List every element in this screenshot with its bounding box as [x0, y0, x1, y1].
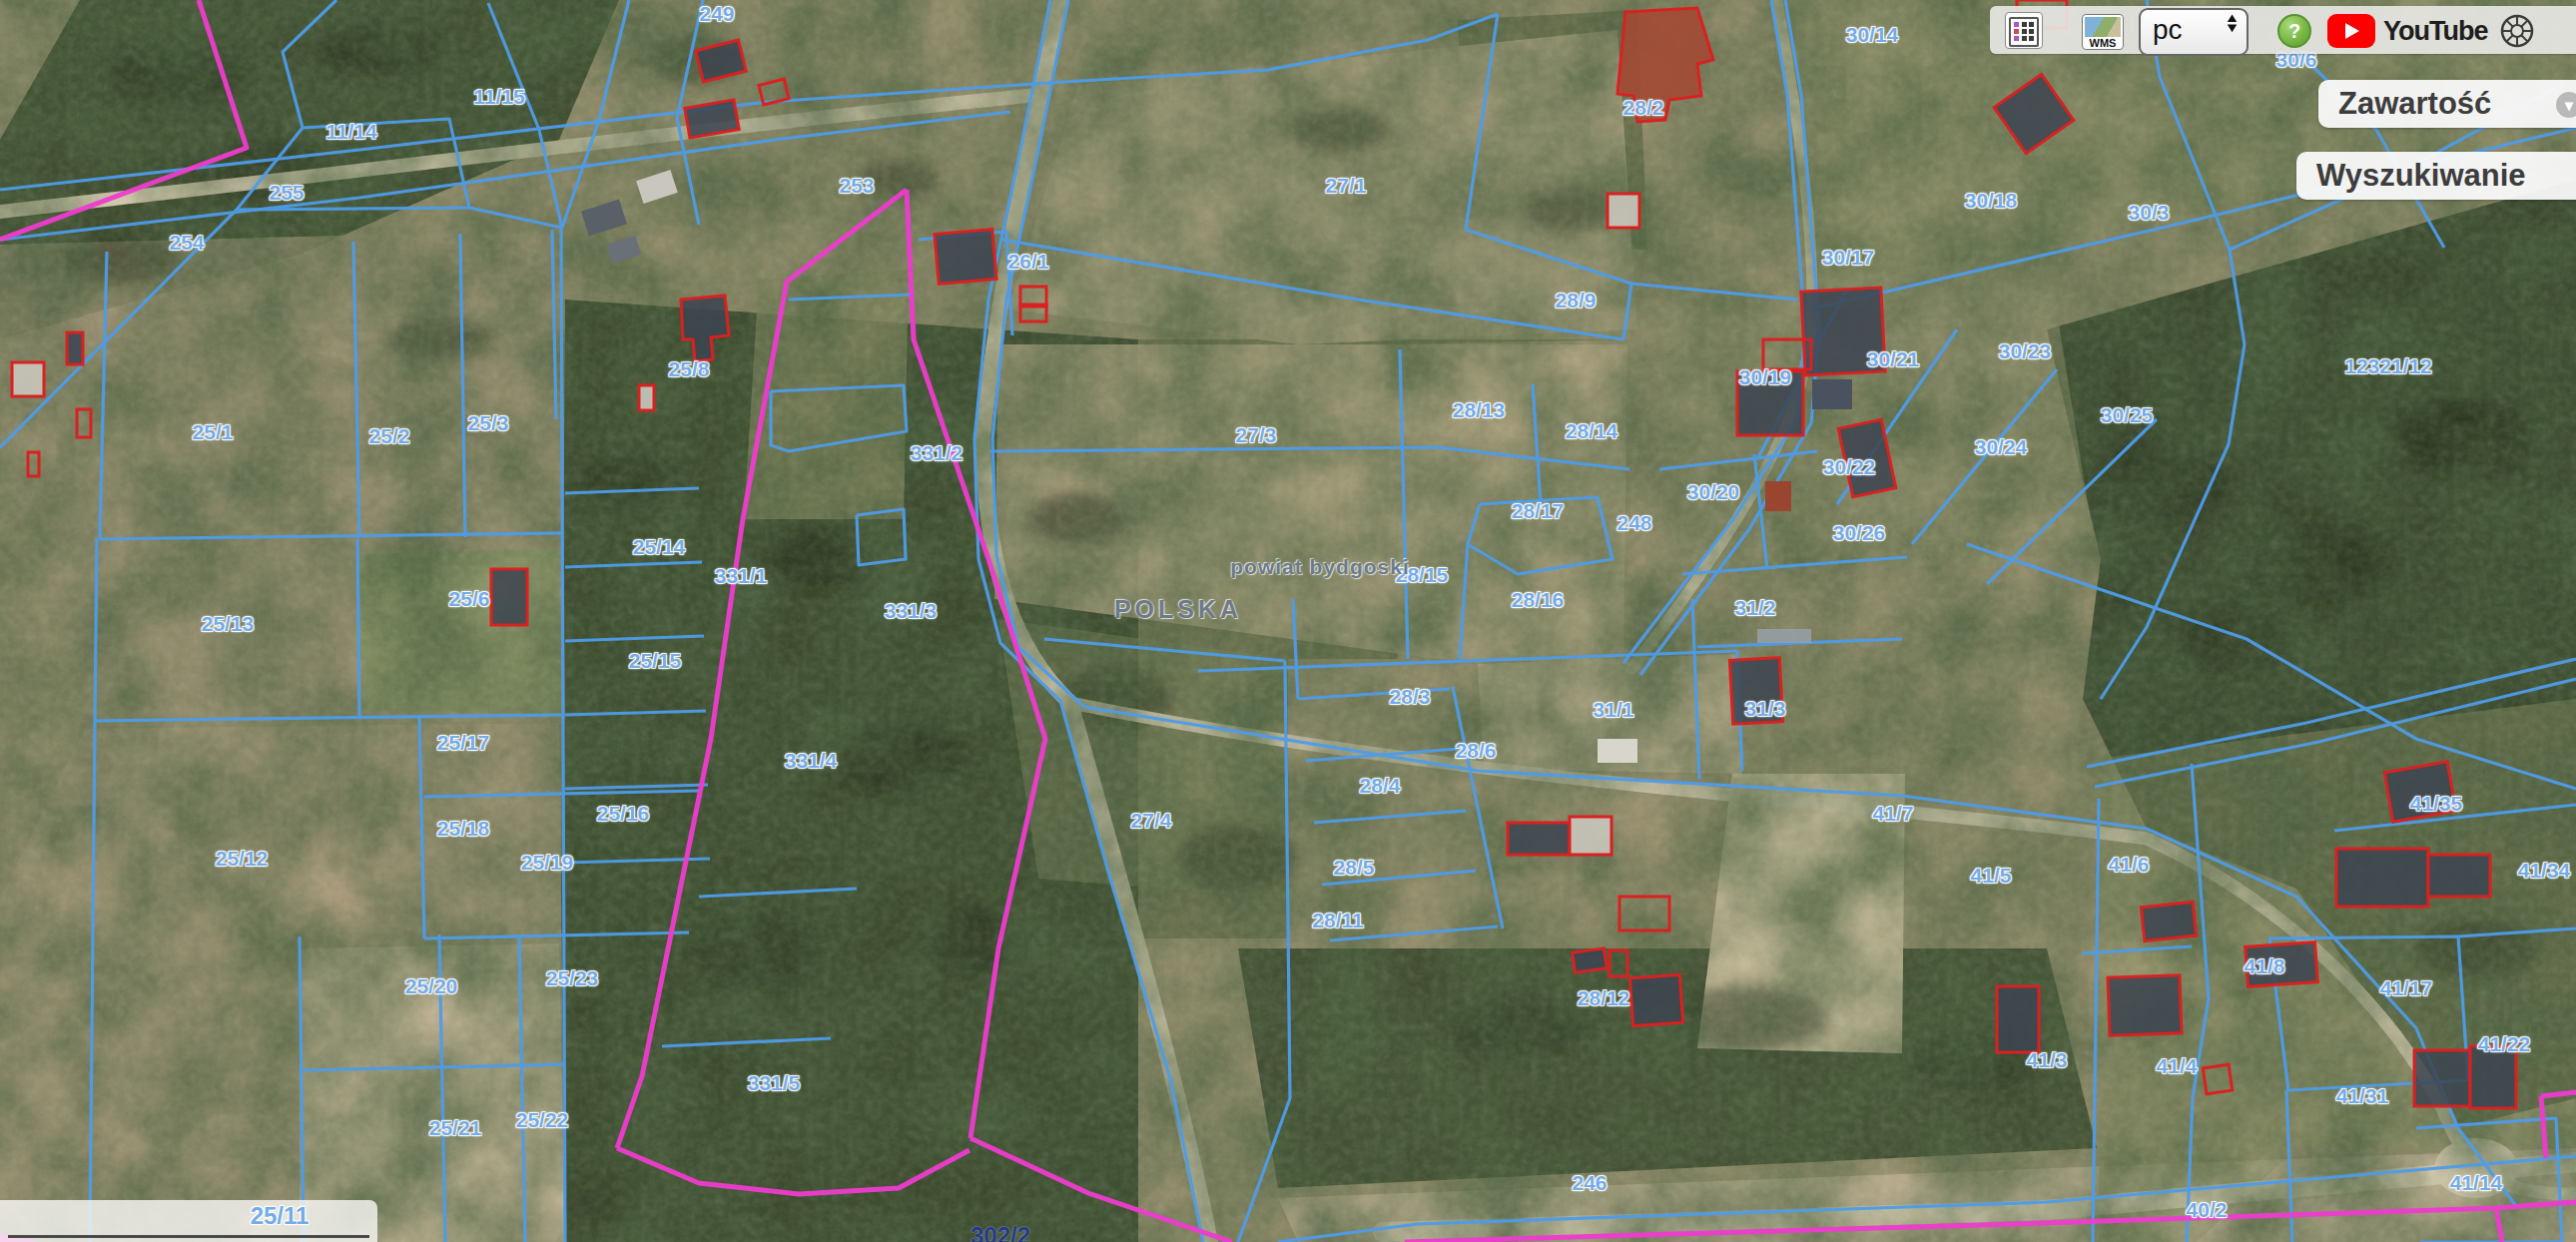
- parcel-info-box: 25/11: [0, 1200, 377, 1242]
- search-panel-header[interactable]: Wyszukiwanie: [2296, 152, 2576, 200]
- info-box-parcel-label: 25/11: [251, 1202, 310, 1230]
- map-viewport[interactable]: 24911/1511/1425325525427/128/230/1430/63…: [0, 0, 2576, 1242]
- wms-label: WMS: [2083, 37, 2123, 49]
- content-panel-header[interactable]: Zawartość ▾: [2318, 80, 2576, 128]
- search-panel-title: Wyszukiwanie: [2296, 158, 2526, 194]
- language-select-value: pc: [2153, 14, 2183, 46]
- youtube-play-icon: [2327, 14, 2375, 48]
- globe-icon[interactable]: [2498, 12, 2536, 50]
- help-button[interactable]: ?: [2277, 14, 2311, 48]
- content-panel-title: Zawartość: [2318, 86, 2491, 122]
- aerial-map-canvas: [0, 0, 2576, 1242]
- wms-map-icon: [2085, 17, 2121, 37]
- map-toolbar: WMS pc ▲▼ ? YouTube: [1990, 6, 2576, 54]
- legend-button[interactable]: [2005, 12, 2043, 49]
- language-select[interactable]: pc ▲▼: [2139, 8, 2249, 56]
- spinner-icon[interactable]: ▲▼: [2226, 13, 2239, 33]
- panel-toggle-icon[interactable]: ▾: [2556, 92, 2576, 118]
- youtube-link[interactable]: YouTube: [2327, 14, 2487, 48]
- legend-grid-icon: [2009, 17, 2039, 47]
- wms-button[interactable]: WMS: [2082, 14, 2124, 50]
- info-box-divider: [8, 1235, 369, 1238]
- youtube-label: YouTube: [2383, 16, 2487, 47]
